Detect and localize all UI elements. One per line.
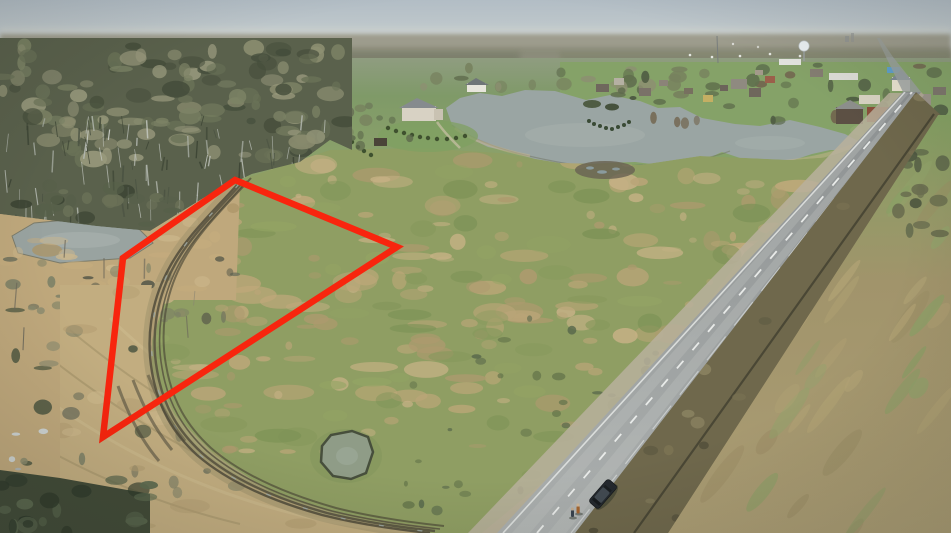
aerial-drone-photo xyxy=(0,0,951,533)
vignette xyxy=(0,0,951,533)
scene-root xyxy=(0,0,951,533)
photo-vignette xyxy=(0,0,951,533)
aerial-photo-screenshot xyxy=(0,0,951,533)
